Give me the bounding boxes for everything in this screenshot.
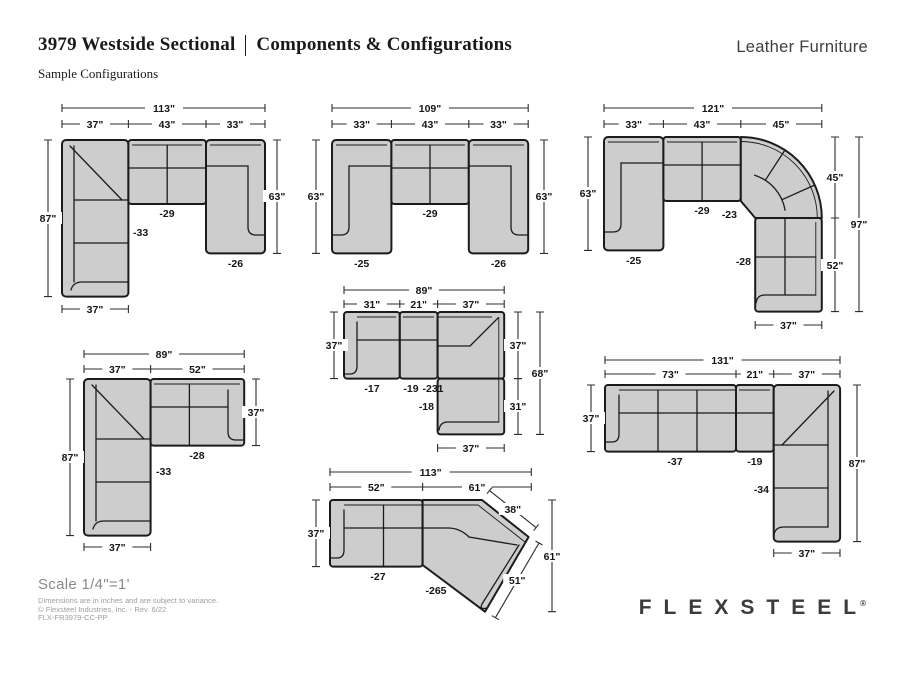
dimension-segments: 37" 43" 33" — [62, 118, 265, 131]
piece--29 — [391, 140, 468, 204]
piece--33 — [62, 140, 128, 297]
svg-text:37": 37" — [798, 369, 815, 381]
svg-text:37": 37" — [109, 542, 126, 554]
sheet-title: Components & Configurations — [256, 34, 512, 56]
piece-label: -19 — [747, 456, 762, 468]
svg-text:109": 109" — [419, 103, 442, 115]
piece-label: -26 — [228, 258, 243, 270]
model-title: 3979 Westside Sectional — [38, 34, 235, 56]
piece--19 — [400, 312, 438, 379]
piece--231-corner — [438, 312, 505, 379]
svg-text:33": 33" — [625, 119, 642, 131]
dimension-segments: 31" 21" 37" — [344, 298, 504, 311]
svg-text:87": 87" — [849, 458, 866, 470]
svg-text:37": 37" — [248, 407, 265, 419]
svg-text:45": 45" — [773, 119, 790, 131]
piece--28 — [755, 218, 822, 312]
svg-text:31": 31" — [510, 401, 527, 413]
legal-notes: Dimensions are in inches and are subject… — [38, 597, 218, 623]
config-diagram-1: 113" 37" 43" 33" 87" 63" 37" -33 -29 -26 — [36, 96, 292, 322]
svg-text:68": 68" — [532, 368, 549, 380]
svg-text:33": 33" — [227, 119, 244, 131]
category-label: Leather Furniture — [736, 38, 868, 57]
piece--19 — [736, 385, 774, 452]
piece--27 — [330, 500, 423, 567]
svg-text:37": 37" — [798, 548, 815, 560]
piece--23-corner-wedge — [741, 137, 822, 218]
svg-text:52": 52" — [827, 260, 844, 272]
dimension-right-height: 87" — [843, 385, 871, 542]
dimension-left-height: 37" — [577, 385, 605, 452]
piece--18 — [438, 379, 505, 435]
piece--26 — [206, 140, 265, 253]
piece--29 — [128, 140, 206, 204]
dimension-bottom-width: 37" — [774, 547, 840, 560]
piece--29 — [663, 137, 740, 201]
piece-label: -265 — [425, 585, 446, 597]
piece--26 — [469, 140, 528, 253]
piece-label: -231 — [422, 383, 443, 395]
dimension-left-height: 87" — [36, 140, 62, 297]
piece-label: -26 — [491, 258, 506, 270]
svg-text:21": 21" — [410, 299, 427, 311]
piece-label: -28 — [189, 450, 204, 462]
dimension-total-width: 131" — [605, 354, 840, 367]
svg-text:33": 33" — [353, 119, 370, 131]
piece-label: -28 — [736, 256, 751, 268]
svg-text:21": 21" — [746, 369, 763, 381]
dimension-right-lower: 52" — [821, 218, 849, 312]
dimension-right-total: 68" — [526, 312, 554, 434]
svg-text:131": 131" — [711, 355, 734, 367]
svg-text:31": 31" — [364, 299, 381, 311]
svg-text:43": 43" — [422, 119, 439, 131]
config-diagram-4: 89" 31" 21" 37" 37" 37" 31" 68" 37" -17 … — [326, 278, 572, 462]
svg-text:52": 52" — [189, 364, 206, 376]
piece--28 — [151, 379, 245, 446]
dimension-bottom-width: 37" — [438, 442, 505, 455]
svg-text:52": 52" — [368, 482, 385, 494]
dimension-bottom-width: 37" — [755, 319, 822, 332]
piece-label: -37 — [667, 456, 682, 468]
svg-text:37": 37" — [583, 413, 600, 425]
svg-text:45": 45" — [827, 172, 844, 184]
dimension-left-height: 63" — [576, 137, 602, 250]
svg-text:63": 63" — [580, 188, 597, 200]
dimension-segments: 33" 43" 33" — [332, 118, 528, 131]
svg-text:43": 43" — [159, 119, 176, 131]
config-diagram-6: 113" 52" 61" 37" 38" 51" 61" -27 -265 — [298, 456, 580, 626]
svg-text:37": 37" — [780, 320, 797, 332]
dimension-total-width: 121" — [604, 102, 822, 115]
svg-text:43": 43" — [694, 119, 711, 131]
piece-label: -25 — [626, 255, 641, 267]
svg-text:89": 89" — [416, 285, 433, 297]
dimension-segments: 52" 61" — [330, 481, 531, 494]
config-diagram-3: 121" 33" 43" 45" 63" 45" 52" 97" 37" -25… — [576, 94, 882, 346]
document-code: FLX-FR3979-CC-PP — [38, 614, 218, 623]
dimension-total-width: 109" — [332, 102, 528, 115]
dimension-right-height: 37" — [242, 379, 270, 446]
dimension-left-height: 37" — [302, 500, 330, 567]
svg-text:51": 51" — [509, 575, 526, 587]
svg-text:61": 61" — [469, 482, 486, 494]
svg-text:37": 37" — [510, 340, 527, 352]
piece-label: -33 — [133, 227, 148, 239]
svg-text:63": 63" — [269, 191, 286, 203]
config-diagram-2: 109" 33" 43" 33" 63" 63" -25 -29 -26 — [302, 96, 558, 292]
scale-note: Scale 1/4"=1' — [38, 576, 130, 593]
svg-text:37": 37" — [463, 299, 480, 311]
spec-sheet-page: { "header": { "title_left": "3979 Westsi… — [0, 0, 906, 700]
dimension-segments: 33" 43" 45" — [604, 118, 822, 131]
dimension-right-height: 61" — [538, 500, 566, 612]
piece--34 — [774, 385, 840, 542]
title-divider — [245, 35, 246, 56]
piece--25 — [332, 140, 391, 253]
dimension-right-height: 63" — [263, 140, 291, 253]
subtitle: Sample Configurations — [38, 66, 158, 82]
dimension-right-height: 63" — [530, 140, 558, 253]
svg-text:87": 87" — [40, 213, 57, 225]
dimension-segments: 37" 52" — [84, 363, 244, 376]
piece-label: -33 — [156, 466, 171, 478]
flexsteel-logo: FLEXSTEEL® — [639, 596, 866, 620]
piece-label: -29 — [159, 208, 174, 220]
svg-text:87": 87" — [62, 452, 79, 464]
svg-text:73": 73" — [662, 369, 679, 381]
piece--37 — [605, 385, 736, 452]
svg-text:113": 113" — [420, 467, 442, 479]
dimension-segments: 73" 21" 37" — [605, 368, 840, 381]
svg-text:89": 89" — [156, 349, 173, 361]
dimension-bottom-width: 37" — [84, 541, 151, 554]
svg-text:37": 37" — [109, 364, 126, 376]
svg-text:37": 37" — [308, 528, 325, 540]
piece--33 — [84, 379, 151, 536]
piece-label: -25 — [354, 258, 369, 270]
piece-label: -29 — [694, 205, 709, 217]
dimension-total-width: 89" — [84, 348, 244, 361]
piece-label: -23 — [722, 209, 737, 221]
dimension-right-upper: 45" — [821, 137, 849, 218]
dimension-right-lower: 31" — [504, 379, 532, 435]
svg-text:37": 37" — [463, 443, 480, 455]
piece-label: -19 — [403, 383, 418, 395]
piece--17 — [344, 312, 400, 379]
svg-text:37": 37" — [87, 119, 104, 131]
svg-text:63": 63" — [308, 191, 325, 203]
flexsteel-wordmark: FLEXSTEEL — [639, 596, 868, 619]
dimension-left-height: 63" — [302, 140, 330, 253]
page-title: 3979 Westside Sectional Components & Con… — [38, 34, 512, 56]
piece-label: -29 — [422, 208, 437, 220]
dimension-right-total: 97" — [845, 137, 873, 312]
piece--25 — [604, 137, 663, 250]
piece-label: -18 — [419, 401, 434, 413]
dimension-bottom-width: 37" — [62, 303, 128, 316]
dimension-total-width: 113" — [62, 102, 265, 115]
piece-label: -34 — [754, 484, 769, 496]
svg-text:121": 121" — [702, 103, 725, 115]
registered-mark: ® — [860, 599, 866, 608]
piece-label: -17 — [364, 383, 379, 395]
svg-text:37": 37" — [326, 340, 342, 352]
svg-text:61": 61" — [544, 551, 561, 563]
dimension-total-width: 113" — [330, 466, 531, 479]
config-diagram-7: 131" 73" 21" 37" 37" 87" 37" -37 -19 -34 — [576, 346, 882, 564]
svg-text:37": 37" — [87, 304, 104, 316]
svg-text:38": 38" — [504, 504, 521, 516]
svg-text:63": 63" — [536, 191, 553, 203]
dimension-left-height: 87" — [56, 379, 84, 536]
config-diagram-5: 89" 37" 52" 87" 37" 37" -33 -28 — [36, 342, 292, 558]
svg-text:113": 113" — [153, 103, 175, 115]
piece-label: -27 — [370, 571, 385, 583]
svg-text:33": 33" — [490, 119, 507, 131]
dimension-total-width: 89" — [344, 284, 504, 297]
svg-text:97": 97" — [851, 219, 868, 231]
